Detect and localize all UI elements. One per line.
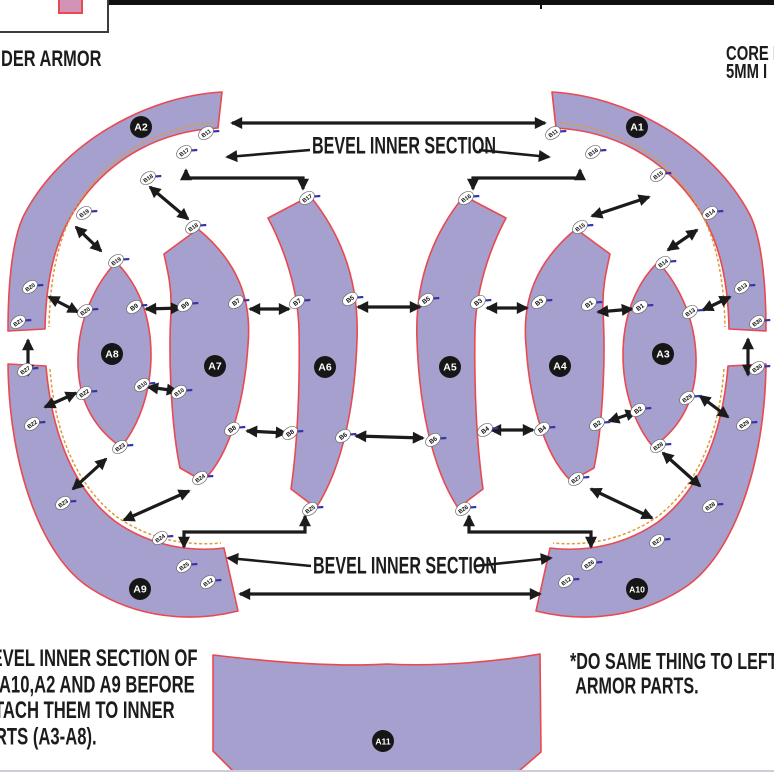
adjacent-diagram-box <box>0 0 109 33</box>
note-left-line: ATTACH THEM TO INNER <box>0 698 198 724</box>
piece-label-a8: A8 <box>101 343 123 365</box>
notch-tick <box>91 209 97 214</box>
piece-label-a1: A1 <box>626 116 648 138</box>
adjacent-pattern-fragment <box>58 0 83 14</box>
notch-tick <box>149 381 155 386</box>
notch-tick <box>167 534 173 539</box>
piece-label-a7: A7 <box>204 355 226 377</box>
notch-tick <box>665 442 671 447</box>
notch-tick <box>200 223 206 228</box>
page-bottom-border <box>0 770 774 772</box>
armor-piece-a11 <box>213 654 541 771</box>
edge-badge-b17: B17 <box>174 141 197 162</box>
notch-tick <box>191 148 197 153</box>
join-arrow <box>591 489 652 518</box>
notch-tick <box>123 257 129 262</box>
note-left-line: *BEVEL INNER SECTION OF <box>0 646 198 672</box>
join-arrow <box>49 297 78 312</box>
notch-tick <box>473 194 479 199</box>
armor-piece-a4 <box>525 229 610 481</box>
notch-tick <box>485 298 491 303</box>
join-arrow-elbow <box>473 170 580 189</box>
join-arrow <box>247 431 286 433</box>
instruction-note-right: *DO SAME THING TO LEFT SIDE ARMOR PARTS. <box>570 650 774 699</box>
notch-tick <box>694 394 700 399</box>
notch-tick <box>357 295 363 300</box>
note-right-line: *DO SAME THING TO LEFT SIDE <box>570 650 774 674</box>
piece-label-a6: A6 <box>314 356 336 378</box>
piece-label-a3: A3 <box>652 343 674 365</box>
piece-label-text: A6 <box>318 361 332 373</box>
edge-badge-b18: B18 <box>138 167 161 188</box>
piece-label-text: A9 <box>133 583 147 595</box>
piece-label-text: A11 <box>375 736 391 746</box>
edge-badge-b4: B4 <box>475 419 498 440</box>
notch-tick <box>600 148 606 153</box>
join-arrow <box>76 227 101 251</box>
join-arrow <box>663 453 700 486</box>
piece-label-text: A3 <box>656 348 670 360</box>
join-arrow-elbow <box>186 170 303 189</box>
notch-tick <box>583 475 589 480</box>
note-right-line: ARMOR PARTS. <box>575 674 774 698</box>
join-arrow <box>703 297 730 310</box>
piece-label-text: A1 <box>630 121 644 133</box>
piece-label-a5: A5 <box>439 356 461 378</box>
page-edge-tick <box>540 0 542 9</box>
piece-label-a10: A10 <box>626 578 648 600</box>
armor-piece-a7 <box>164 229 249 481</box>
pattern-diagram-page: B11B17B18B19B20B21B11B16B15B14B13B30B27B… <box>0 0 774 774</box>
piece-label-a4: A4 <box>549 355 571 377</box>
piece-label-text: A4 <box>553 360 567 372</box>
notch-tick <box>350 432 356 437</box>
piece-label-text: A8 <box>105 348 119 360</box>
join-arrow-elbow <box>184 516 305 547</box>
join-arrow <box>124 491 189 520</box>
piece-label-text: A2 <box>134 121 148 133</box>
armor-piece-a6 <box>268 196 357 508</box>
material-note-partial: CORE I 5MM I <box>726 45 774 81</box>
piece-label-text: A5 <box>443 361 457 373</box>
piece-label-text: A10 <box>629 584 645 594</box>
piece-label-text: A7 <box>208 360 222 372</box>
join-arrow <box>73 459 106 489</box>
notch-tick <box>697 308 703 313</box>
callout-arrow <box>228 558 311 566</box>
join-arrow <box>668 230 697 250</box>
notch-tick <box>314 194 320 199</box>
callout-arrow <box>227 150 310 157</box>
note-left-line: PARTS (A3-A8). <box>0 724 198 750</box>
bevel-inner-section-label-bottom: BEVEL INNER SECTION <box>313 551 497 580</box>
piece-label-a11: A11 <box>372 730 394 752</box>
notch-tick <box>239 425 245 430</box>
piece-label-a2: A2 <box>130 116 152 138</box>
piece-label-a9: A9 <box>129 578 151 600</box>
note-left-line: A1,A10,A2 AND A9 BEFORE <box>0 672 198 698</box>
armor-piece-a5 <box>417 196 506 508</box>
bevel-inner-section-label-top: BEVEL INNER SECTION <box>312 131 496 160</box>
notch-tick <box>587 223 593 228</box>
section-title-partial: DER ARMOR <box>1 47 101 72</box>
join-arrow <box>150 187 188 219</box>
notch-tick <box>127 443 133 448</box>
instruction-note-left: *BEVEL INNER SECTION OF A1,A10,A2 AND A9… <box>0 646 198 750</box>
top-border-bar <box>0 0 774 5</box>
notch-tick <box>213 129 219 134</box>
join-arrow <box>592 197 649 216</box>
notch-tick <box>670 259 676 264</box>
join-arrow <box>146 308 181 309</box>
material-note-line2: 5MM I <box>726 63 774 81</box>
notch-tick <box>155 174 161 179</box>
notch-tick <box>470 505 476 510</box>
join-arrow-elbow <box>469 516 591 547</box>
edge-badge-b16: B16 <box>583 141 606 162</box>
join-arrow <box>356 436 423 438</box>
